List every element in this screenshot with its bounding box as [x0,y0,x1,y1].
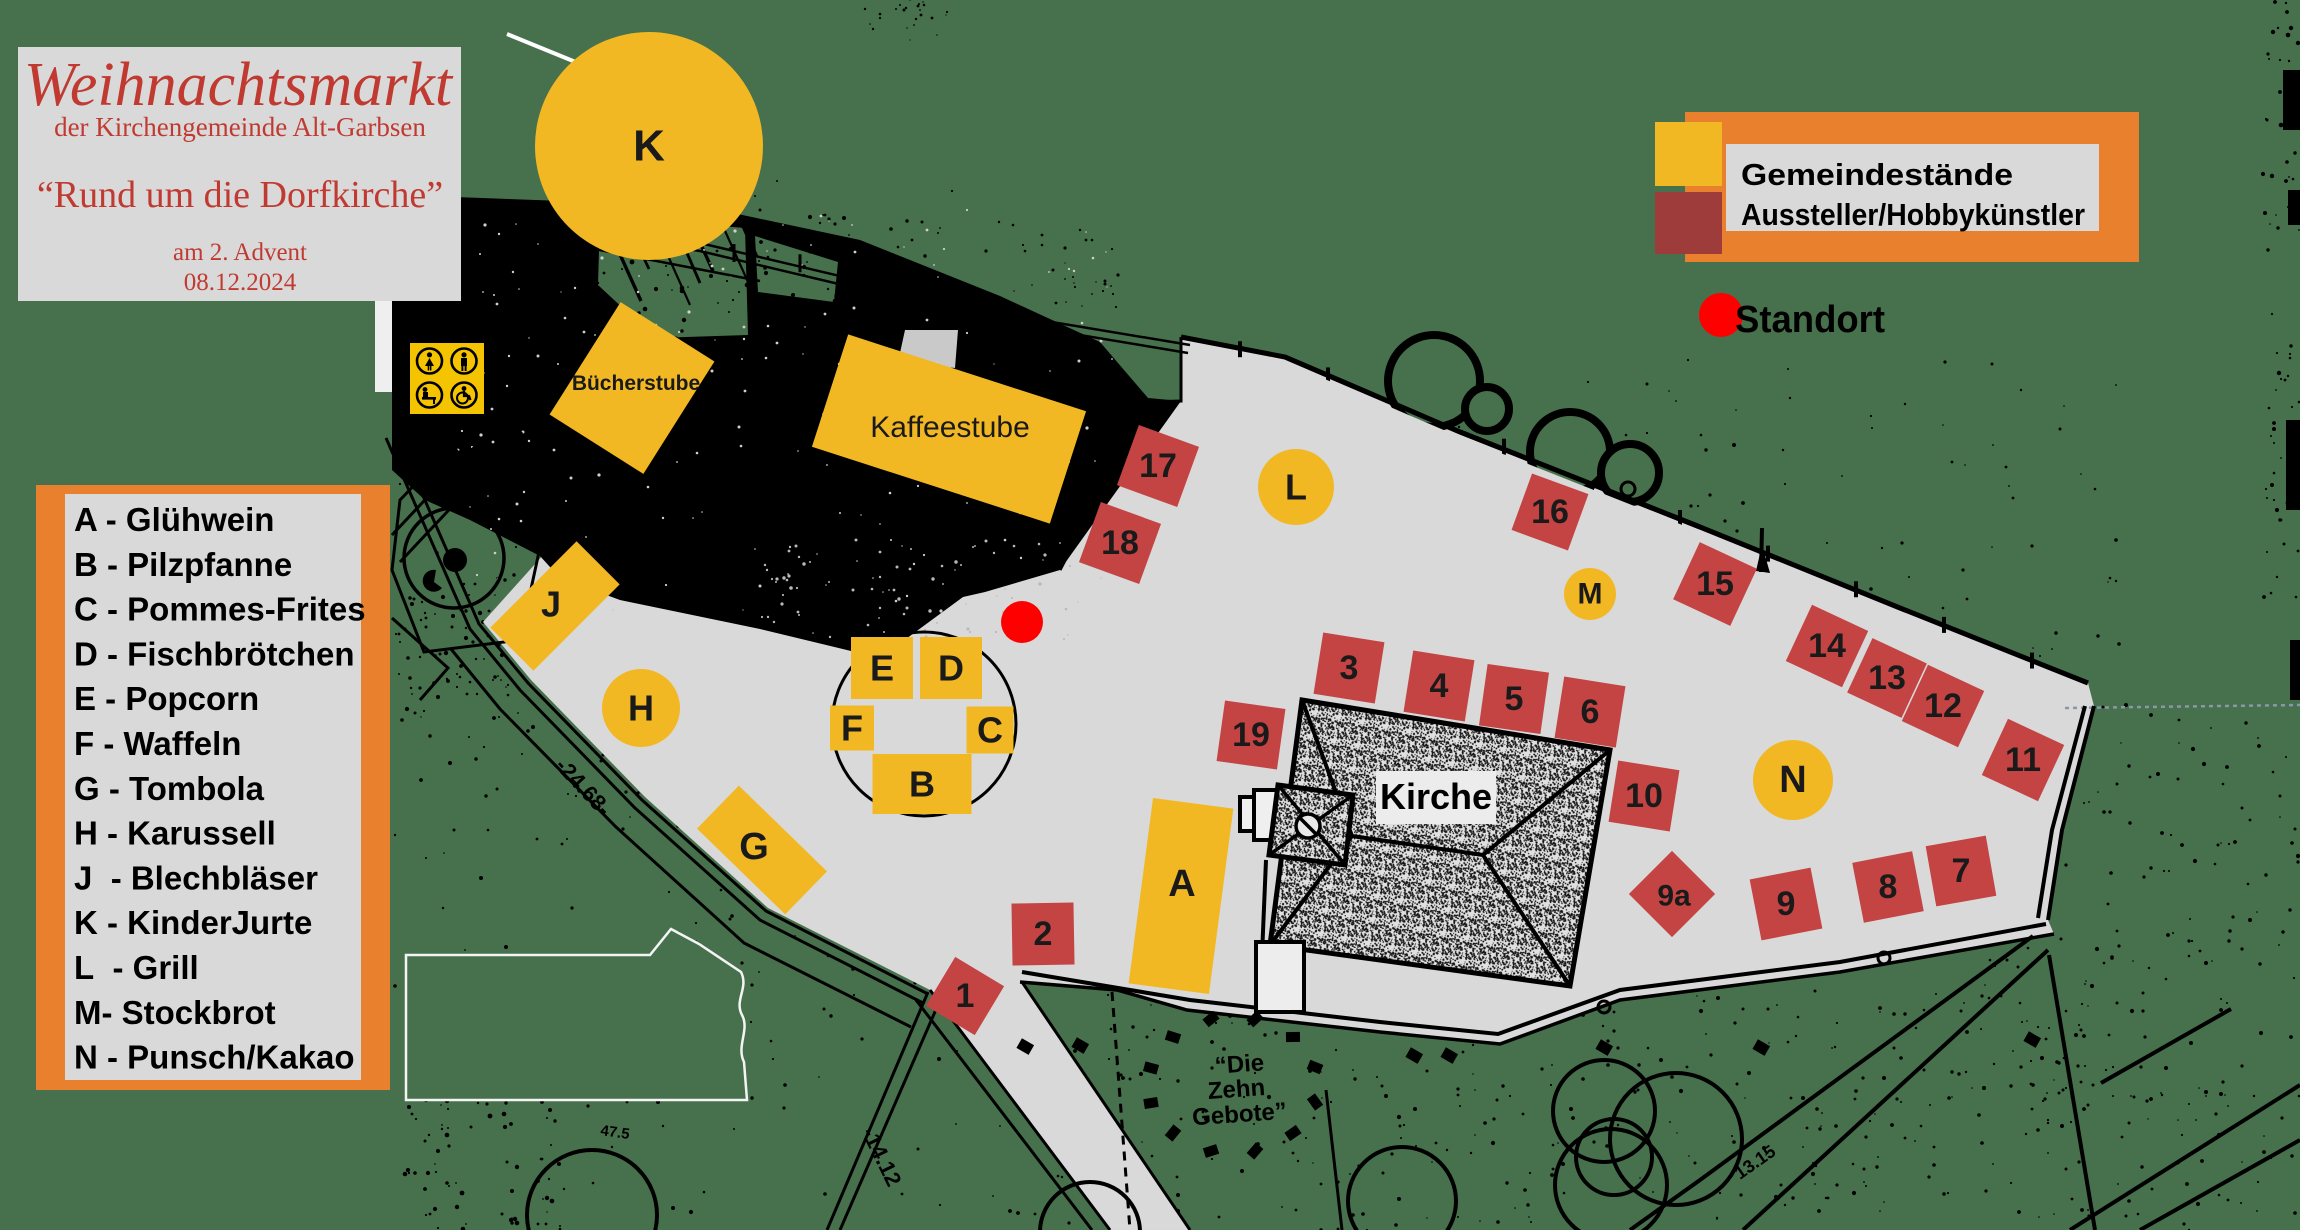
svg-text:der Kirchengemeinde Alt-Garbse: der Kirchengemeinde Alt-Garbsen [54,112,426,142]
svg-text:C: C [977,710,1003,751]
svg-text:C - Pommes-Frites: C - Pommes-Frites [74,591,366,628]
svg-text:L - Grill: L - Grill [74,949,199,986]
svg-text:4: 4 [1430,667,1449,705]
svg-text:13: 13 [1868,659,1906,697]
svg-text:B: B [909,764,935,805]
svg-text:1: 1 [956,977,975,1015]
svg-text:8: 8 [1879,868,1898,906]
svg-text:2: 2 [1034,915,1053,953]
svg-text:M- Stockbrot: M- Stockbrot [74,994,276,1031]
svg-text:Weihnachtsmarkt: Weihnachtsmarkt [24,51,454,119]
svg-text:18: 18 [1101,524,1139,562]
svg-text:“Rund um die Dorfkirche”: “Rund um die Dorfkirche” [37,174,443,216]
svg-text:9a: 9a [1657,880,1691,913]
svg-text:H - Karussell: H - Karussell [74,815,276,852]
svg-text:Kirche: Kirche [1380,776,1492,817]
svg-text:Aussteller/Hobbykünstler: Aussteller/Hobbykünstler [1741,197,2085,232]
svg-text:Bücherstube: Bücherstube [572,372,700,395]
svg-text:14: 14 [1808,627,1846,665]
svg-text:19: 19 [1232,716,1270,754]
svg-text:N: N [1779,759,1806,801]
svg-text:A - Glühwein: A - Glühwein [74,501,274,538]
svg-text:9: 9 [1777,885,1796,923]
svg-text:M: M [1578,578,1603,611]
svg-text:K - KinderJurte: K - KinderJurte [74,904,312,941]
svg-text:17: 17 [1139,447,1177,485]
svg-text:Standort: Standort [1735,299,1885,341]
svg-text:E: E [870,648,894,689]
svg-text:7: 7 [1952,852,1971,890]
svg-text:A: A [1168,863,1195,905]
svg-text:6: 6 [1581,693,1600,731]
svg-text:E - Popcorn: E - Popcorn [74,680,259,717]
svg-text:am 2. Advent: am 2. Advent [173,239,307,266]
svg-text:08.12.2024: 08.12.2024 [184,269,297,296]
svg-text:Gemeindestände: Gemeindestände [1741,157,2013,192]
svg-text:J: J [541,584,561,625]
svg-text:H: H [628,688,654,729]
svg-text:3: 3 [1340,649,1359,687]
svg-text:L: L [1285,467,1307,508]
svg-text:F - Waffeln: F - Waffeln [74,725,241,762]
svg-text:10: 10 [1625,777,1663,815]
svg-text:D: D [938,648,964,689]
svg-text:15: 15 [1696,565,1734,603]
svg-text:N - Punsch/Kakao: N - Punsch/Kakao [74,1039,355,1076]
svg-text:16: 16 [1531,493,1569,531]
svg-text:11: 11 [2005,741,2041,779]
svg-text:5: 5 [1505,680,1524,718]
svg-text:J - Blechbläser: J - Blechbläser [74,859,318,896]
svg-text:F: F [841,708,863,749]
svg-text:12: 12 [1924,687,1962,725]
svg-text:Kaffeestube: Kaffeestube [870,411,1030,444]
svg-text:D - Fischbrötchen: D - Fischbrötchen [74,635,355,672]
svg-text:K: K [633,122,665,171]
svg-text:G: G [739,826,769,868]
svg-text:G - Tombola: G - Tombola [74,770,265,807]
svg-text:B - Pilzpfanne: B - Pilzpfanne [74,546,292,583]
